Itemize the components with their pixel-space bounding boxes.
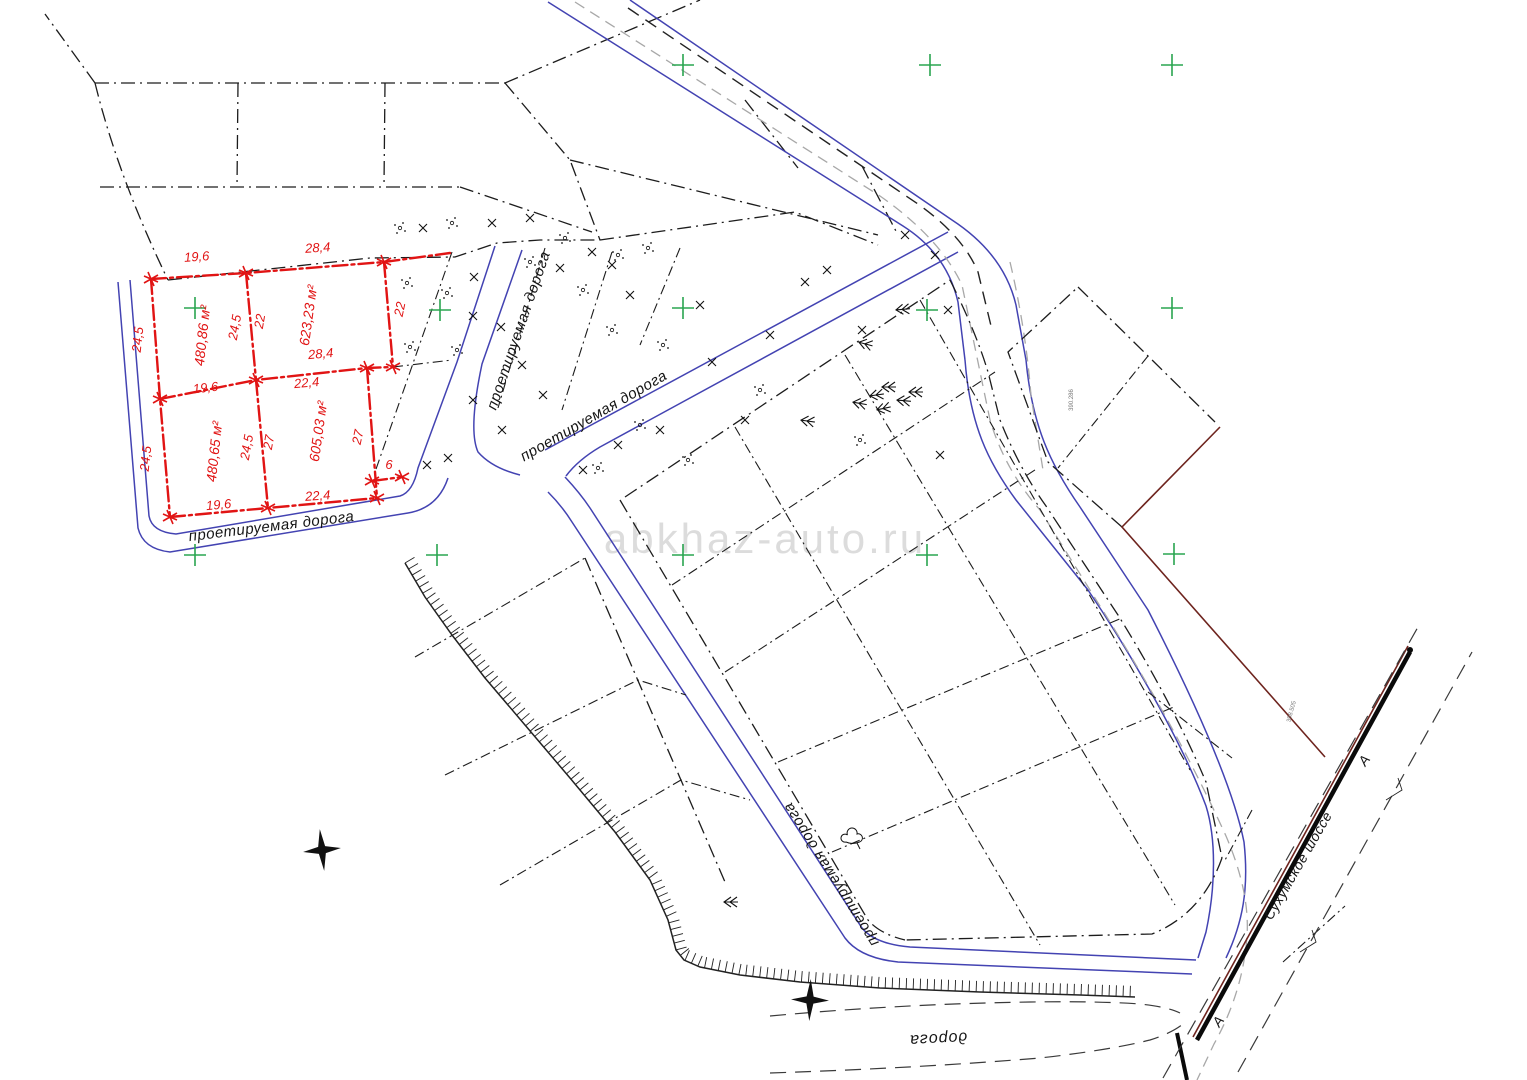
deciduous-tree-icon — [841, 828, 862, 849]
scrub-x-icon — [766, 331, 774, 339]
vegetation-dots-icon — [441, 287, 453, 299]
dim-mid-upper-e: 22 — [251, 312, 269, 331]
vegetation-dots-icon — [657, 339, 669, 351]
scrub-x-icon — [741, 416, 749, 424]
scrub-x-icon — [931, 251, 939, 259]
conifer-tree-icon — [897, 395, 912, 406]
scrub-x-icon — [858, 326, 866, 334]
grid-cross-icon — [429, 299, 451, 321]
coord-note-2: 398.505 — [1286, 700, 1298, 723]
dim-bot-1: 19,6 — [205, 496, 232, 513]
scrub-x-icon — [444, 454, 452, 462]
scrub-x-icon — [579, 466, 587, 474]
scrub-x-icon — [696, 301, 704, 309]
vegetation-dots-icon — [404, 341, 416, 353]
vegetation-dots-icon — [642, 242, 654, 254]
conifer-tree-icon — [852, 397, 868, 409]
conifer-tree-icon — [800, 415, 815, 427]
vegetation-dots-icon — [394, 222, 406, 234]
map-labels-layer: 19,628,424,524,5222219,628,422,424,524,5… — [129, 239, 1373, 1048]
area-plot-2: 623,23 м² — [296, 283, 321, 347]
grid-cross-icon — [1163, 543, 1185, 565]
scrub-x-icon — [608, 261, 616, 269]
scrub-x-icon — [801, 278, 809, 286]
conifer-tree-icon — [876, 402, 892, 415]
survey-star-icon — [301, 827, 343, 873]
dim-left-upper: 24,5 — [129, 325, 147, 353]
vegetation-dots-icon — [854, 434, 866, 446]
conifer-tree-icon — [909, 387, 923, 397]
dim-mid-1: 19,6 — [192, 379, 219, 397]
dim-bot-2: 22,4 — [304, 487, 331, 504]
scrub-x-icon — [944, 306, 952, 314]
grid-cross-icon — [672, 297, 694, 319]
dim-left-lower: 24,5 — [137, 444, 155, 472]
conifer-tree-icon — [869, 389, 884, 401]
dim-right-lower: 27 — [349, 428, 367, 447]
grid-cross-icon — [916, 299, 938, 321]
scrub-x-icon — [656, 426, 664, 434]
road-label-central: проетируемая дорога — [780, 799, 883, 949]
parcels-top-left-block — [45, 0, 898, 280]
coord-note-1: 390.286 — [1069, 389, 1075, 411]
scrub-x-icon — [423, 461, 431, 469]
dim-right-upper: 22 — [391, 300, 409, 319]
scrub-x-icon — [470, 273, 478, 281]
vegetation-dots-icon — [592, 462, 604, 474]
grid-cross-icon — [1161, 297, 1183, 319]
scrub-x-icon — [539, 391, 547, 399]
scrub-x-icon — [588, 248, 596, 256]
cadastral-plan-page: abkhaz-auto.ru — [0, 0, 1527, 1080]
dim-ext: 6 — [385, 457, 393, 472]
vegetation-dots-icon — [606, 324, 618, 336]
scrub-x-icon — [419, 224, 427, 232]
highway-endpoint — [1407, 647, 1413, 653]
parcels-central-block — [620, 280, 1222, 945]
scrub-x-icon — [556, 264, 564, 272]
road-label-southwest: проетируемая дорога — [188, 508, 356, 545]
scrub-x-icon — [823, 266, 831, 274]
vegetation-dots-icon — [577, 284, 589, 296]
scrub-x-icon — [498, 426, 506, 434]
grid-cross-icon — [919, 54, 941, 76]
survey-star-icon — [790, 978, 829, 1021]
dim-top-2: 28,4 — [304, 239, 331, 256]
vegetation-dots-icon — [446, 217, 458, 229]
scrub-x-icon — [488, 219, 496, 227]
scrub-x-icon — [936, 451, 944, 459]
scrub-x-icon — [497, 323, 505, 331]
vegetation-dots-icon — [401, 277, 413, 289]
scrub-x-icon — [614, 441, 622, 449]
dim-mid-lower-w: 24,5 — [237, 433, 256, 462]
area-plot-4: 605,03 м² — [306, 399, 331, 463]
conifer-tree-icon — [896, 304, 911, 315]
parcels-west-block — [415, 558, 750, 885]
scrub-x-icon — [626, 291, 634, 299]
bottom-road — [770, 1002, 1183, 1073]
vegetation-dots-icon — [612, 249, 624, 261]
area-plot-3: 480,65 м² — [203, 419, 225, 483]
vegetation-dots-icon — [754, 384, 766, 396]
dim-mid-lower-e: 27 — [260, 433, 278, 452]
scrub-x-icon — [518, 361, 526, 369]
grid-cross-icon — [672, 54, 694, 76]
dim-top-1: 19,6 — [184, 248, 211, 265]
slope-embankment — [405, 557, 1135, 997]
axis-letter-2: А — [1354, 752, 1373, 770]
highway-label: Сухумское шоссе — [1260, 809, 1335, 923]
conifer-tree-icon — [724, 897, 738, 907]
vegetation-dots-icon — [682, 454, 694, 466]
highway — [1163, 627, 1472, 1080]
scrub-x-icon — [526, 214, 534, 222]
cadastral-plan-drawing: abkhaz-auto.ru — [0, 0, 1527, 1080]
road-label-bottom: дорога — [909, 1028, 968, 1048]
dim-mid-upper-w: 24,5 — [225, 313, 244, 342]
dim-mid-2: 28,4 — [306, 345, 334, 362]
grid-cross-icon — [426, 544, 448, 566]
vegetation-dots-icon — [559, 232, 571, 244]
conifer-tree-icon — [858, 337, 874, 350]
slope-hatch-ticks — [405, 557, 1130, 996]
dim-mid-3: 22,4 — [292, 374, 320, 391]
scrub-x-icon — [901, 231, 909, 239]
grid-cross-icon — [1161, 54, 1183, 76]
conifer-tree-icon — [882, 382, 896, 392]
